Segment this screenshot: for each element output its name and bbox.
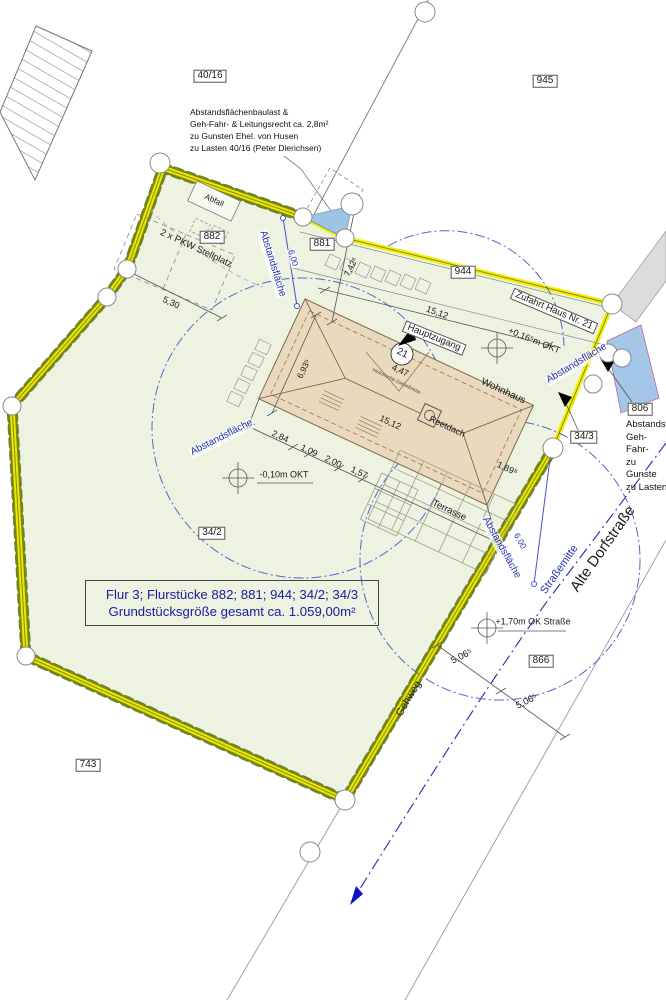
site-plan-drawing xyxy=(0,0,666,1000)
easement-note-line: zu Gunsten Ehel. von Husen xyxy=(190,130,328,142)
note-leader-line xyxy=(284,156,331,211)
neighbour-boundary-line xyxy=(312,0,428,218)
centerline-arrow xyxy=(350,886,363,905)
plot-info-line-2: Grundstücksgröße gesamt ca. 1.059,00m² xyxy=(86,604,378,619)
level-ok-strasse: +1,70m OK Straße xyxy=(495,617,570,626)
easement-note-line: zu Lasten 40/16 (Peter Dierichsen) xyxy=(190,142,328,154)
parcel-label-866: 866 xyxy=(529,655,554,668)
level-okt-minus: -0,10m OKT xyxy=(259,470,308,479)
sidewalk-west-edge xyxy=(227,800,345,1000)
parcel-label-40-16: 40/16 xyxy=(193,70,226,83)
parcel-label-743: 743 xyxy=(76,759,101,772)
parcel-label-881: 881 xyxy=(310,238,335,251)
site-plan: 40/16 945 882 881 944 34/3 34/2 806 866 … xyxy=(0,0,666,1000)
parcel-label-945: 945 xyxy=(533,75,558,88)
parcel-label-34-3: 34/3 xyxy=(570,431,597,444)
parcel-label-882: 882 xyxy=(200,231,225,244)
plot-info-box: Flur 3; Flurstücke 882; 881; 944; 34/2; … xyxy=(85,580,379,626)
parcel-label-34-2: 34/2 xyxy=(198,527,225,540)
easement-note-line: zu Gunste xyxy=(626,457,666,482)
easement-note-top: Abstandsflächenbaulast & Geh-Fahr- & Lei… xyxy=(190,106,328,154)
plot-info-line-1: Flur 3; Flurstücke 882; 881; 944; 34/2; … xyxy=(86,587,378,602)
hatched-building xyxy=(0,26,92,180)
easement-note-line: Abstandsflächenbaulast & xyxy=(190,106,328,118)
easement-note-line: Geh-Fahr- & Leitungsrecht ca. 2,8m² xyxy=(190,118,328,130)
easement-note-line: Abstandsf xyxy=(626,419,666,432)
driveway-crossing-area xyxy=(607,325,659,413)
easement-note-line: Geh-Fahr- xyxy=(626,432,666,457)
easement-note-right: Abstandsf Geh-Fahr- zu Gunste zu Lasten xyxy=(626,419,666,494)
parcel-label-806: 806 xyxy=(628,403,653,416)
easement-note-line: zu Lasten xyxy=(626,482,666,495)
parcel-label-944: 944 xyxy=(451,266,476,279)
